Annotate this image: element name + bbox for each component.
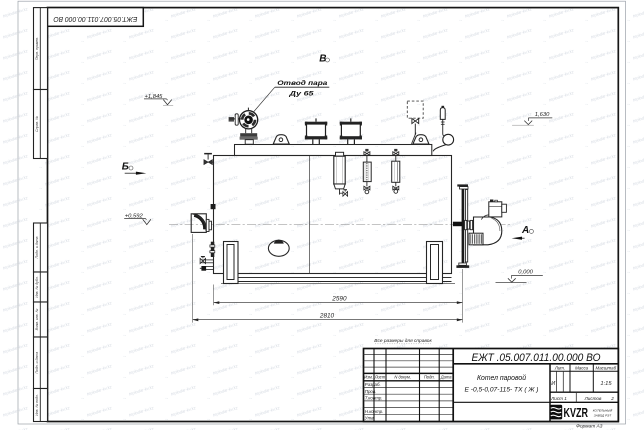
- svg-text:Перв. примен.: Перв. примен.: [35, 37, 39, 60]
- svg-text:1:15: 1:15: [600, 381, 612, 387]
- svg-text:Е -0,5-0,07-115- ТХ ( Ж ): Е -0,5-0,07-115- ТХ ( Ж ): [465, 387, 539, 394]
- svg-text:Лист 1: Лист 1: [550, 396, 567, 401]
- svg-text:Т.контр.: Т.контр.: [365, 396, 383, 401]
- svg-text:Все размеры для справок: Все размеры для справок: [374, 338, 432, 344]
- svg-text:Подп.: Подп.: [424, 375, 435, 380]
- svg-text:Взам. инв. №: Взам. инв. №: [35, 308, 39, 330]
- svg-text:Изм.: Изм.: [364, 375, 373, 380]
- svg-text:Подп. и дата: Подп. и дата: [35, 236, 39, 258]
- svg-text:N докум.: N докум.: [394, 375, 411, 380]
- svg-text:Утв.: Утв.: [365, 416, 375, 421]
- svg-text:Ду 65: Ду 65: [288, 91, 314, 98]
- svg-text:2810: 2810: [319, 313, 335, 320]
- svg-text:2590: 2590: [331, 296, 347, 303]
- svg-text:Формат А3: Формат А3: [576, 424, 603, 430]
- svg-text:0,000: 0,000: [518, 270, 533, 276]
- svg-text:КОТЕЛЬНЫЙ: КОТЕЛЬНЫЙ: [593, 409, 613, 413]
- svg-text:Лист: Лист: [374, 375, 386, 380]
- svg-text:Инв. № дубл.: Инв. № дубл.: [35, 276, 39, 298]
- svg-text:Н.контр.: Н.контр.: [365, 409, 384, 414]
- svg-text:Дата: Дата: [440, 375, 453, 380]
- svg-text:Инв. № подл.: Инв. № подл.: [35, 394, 39, 416]
- svg-text:ЗАВОД РЭТ: ЗАВОД РЭТ: [594, 413, 613, 417]
- svg-text:А: А: [521, 225, 529, 236]
- svg-text:И: И: [551, 381, 555, 387]
- svg-text:Масштаб: Масштаб: [596, 366, 617, 371]
- svg-text:1,630: 1,630: [535, 112, 550, 118]
- svg-text:Масса: Масса: [575, 366, 589, 371]
- svg-text:Котел паровой: Котел паровой: [477, 373, 526, 382]
- svg-text:Б: Б: [122, 162, 129, 173]
- svg-text:ЕЖТ.05.007.011.00.000 ВО: ЕЖТ.05.007.011.00.000 ВО: [53, 15, 137, 24]
- svg-text:KVZR: KVZR: [564, 406, 589, 420]
- svg-text:Пров.: Пров.: [365, 389, 377, 394]
- svg-text:Лит.: Лит.: [554, 366, 565, 371]
- svg-text:Отвод пара: Отвод пара: [277, 79, 327, 87]
- svg-text:Справ. №: Справ. №: [35, 116, 39, 132]
- svg-text:2: 2: [610, 396, 614, 401]
- svg-text:Разраб.: Разраб.: [365, 382, 381, 387]
- svg-text:ЕЖТ .05.007.011.00.000 ВО: ЕЖТ .05.007.011.00.000 ВО: [472, 352, 601, 364]
- svg-text:Подп. и дата: Подп. и дата: [35, 352, 39, 374]
- svg-text:Листов: Листов: [584, 396, 602, 401]
